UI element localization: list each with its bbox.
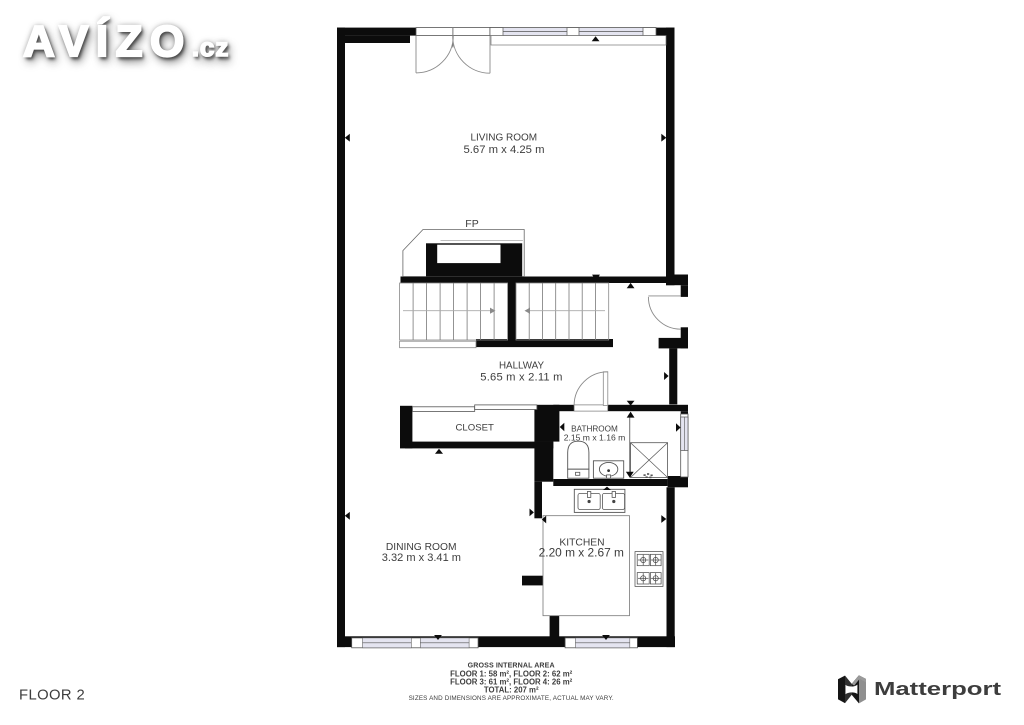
svg-text:5.65 m x 2.11 m: 5.65 m x 2.11 m <box>480 371 562 383</box>
svg-text:Matterport: Matterport <box>874 679 1002 700</box>
svg-text:GROSS INTERNAL AREA: GROSS INTERNAL AREA <box>468 661 555 669</box>
svg-text:3.32 m x 3.41 m: 3.32 m x 3.41 m <box>382 552 461 564</box>
svg-text:SIZES AND DIMENSIONS ARE APPRO: SIZES AND DIMENSIONS ARE APPROXIMATE, AC… <box>409 695 614 702</box>
svg-text:5.67 m x 4.25 m: 5.67 m x 4.25 m <box>464 144 545 156</box>
svg-text:2.15 m x 1.16 m: 2.15 m x 1.16 m <box>564 432 626 442</box>
svg-text:LIVING ROOM: LIVING ROOM <box>470 133 537 144</box>
svg-text:FP: FP <box>465 218 478 230</box>
svg-text:TOTAL: 207 m²: TOTAL: 207 m² <box>484 686 539 695</box>
svg-text:FLOOR 2: FLOOR 2 <box>19 688 85 704</box>
svg-text:CLOSET: CLOSET <box>456 423 495 434</box>
svg-text:HALLWAY: HALLWAY <box>499 361 544 372</box>
svg-text:2.20 m x 2.67 m: 2.20 m x 2.67 m <box>539 545 624 559</box>
